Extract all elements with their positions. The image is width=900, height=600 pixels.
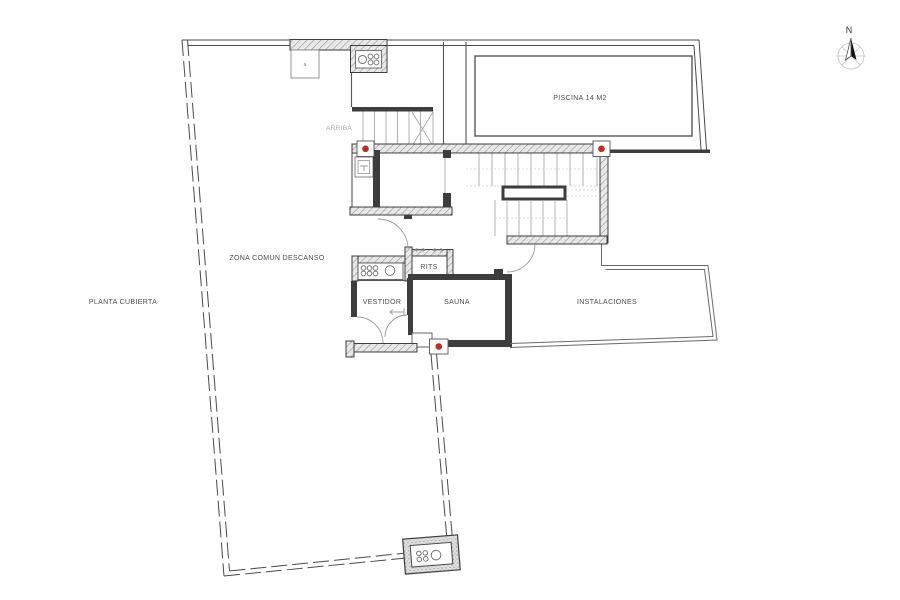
- compass: N: [836, 25, 866, 69]
- compass-north-label: N: [846, 25, 853, 35]
- drain-marker-icon: [598, 146, 605, 153]
- main-wall: [352, 144, 595, 153]
- floor-plan-drawing: N PISCINA 14 M2 ARRIBA ZONA COMUN DESCAN…: [0, 0, 900, 600]
- floor-plan-canvas: N PISCINA 14 M2 ARRIBA ZONA COMUN DESCAN…: [0, 0, 900, 600]
- stairs-upper: [352, 107, 433, 146]
- drain-marker-icon: [362, 146, 369, 153]
- stairs-up-label: ARRIBA: [326, 125, 352, 132]
- stair-railing: [503, 187, 565, 199]
- elevator-block: [350, 150, 452, 219]
- pool-label: PISCINA 14 M2: [553, 95, 607, 102]
- closet-a-label: a: [304, 62, 307, 68]
- dressing-room-label: VESTIDOR: [363, 299, 402, 306]
- door-arrow-left: [390, 308, 404, 316]
- installations-label: INSTALACIONES: [577, 299, 637, 306]
- rits-label: RITS: [420, 264, 437, 271]
- drain-marker-icon: [436, 343, 443, 350]
- vestidor-room: [351, 278, 413, 317]
- pool-equipment-box: [351, 46, 388, 108]
- service-box: [403, 535, 461, 574]
- plan-title-label: PLANTA CUBIERTA: [89, 299, 157, 306]
- south-wall: [346, 341, 417, 357]
- north-arrow-icon: [836, 38, 866, 69]
- sauna-room: [408, 269, 512, 347]
- common-area-label: ZONA COMUN DESCANSO: [229, 255, 325, 262]
- sauna-label: SAUNA: [444, 299, 470, 306]
- stairwell-central: [466, 150, 608, 244]
- drain-markers: [357, 141, 610, 354]
- installations-room: [510, 243, 717, 348]
